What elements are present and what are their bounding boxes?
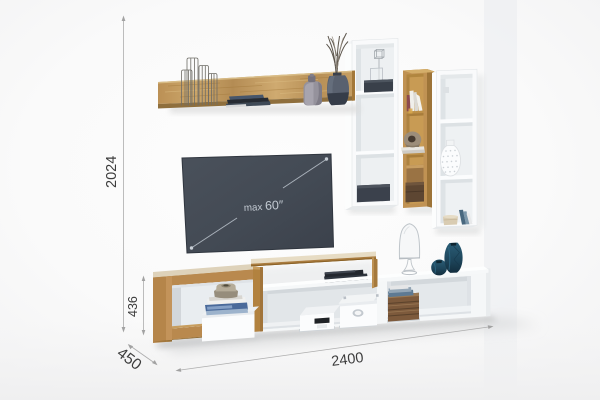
svg-text:2024: 2024 <box>104 156 120 188</box>
svg-text:436: 436 <box>126 296 140 317</box>
